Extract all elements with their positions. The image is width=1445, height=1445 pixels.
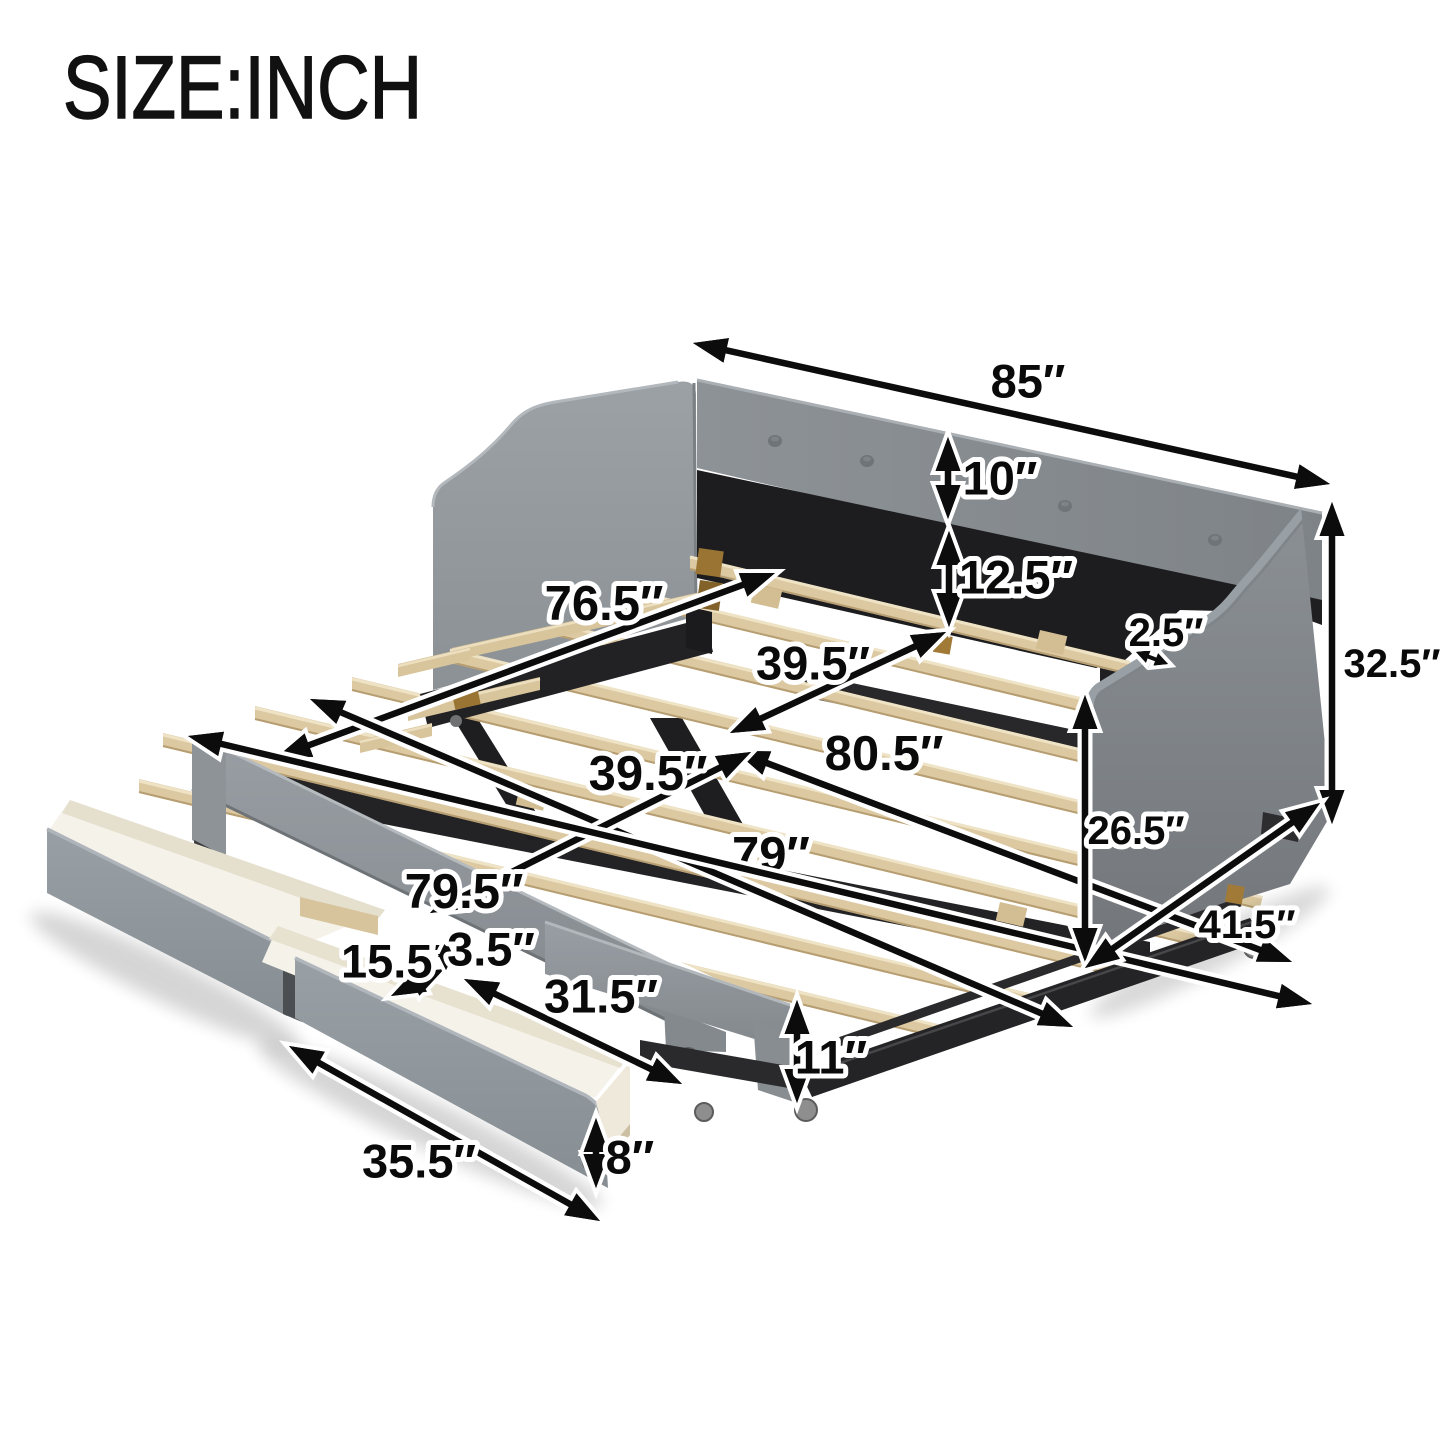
svg-text:12.5″: 12.5″ (959, 551, 1073, 604)
svg-text:35.5″: 35.5″ (362, 1135, 476, 1188)
svg-text:26.5″: 26.5″ (1087, 809, 1184, 853)
svg-text:76.5″: 76.5″ (545, 577, 664, 631)
svg-text:8″: 8″ (606, 1131, 655, 1184)
svg-text:79.5″: 79.5″ (405, 865, 524, 919)
svg-text:41.5″: 41.5″ (1198, 903, 1295, 947)
svg-text:2.5″: 2.5″ (1129, 611, 1204, 655)
svg-text:31.5″: 31.5″ (544, 970, 658, 1023)
svg-text:SIZE:INCH: SIZE:INCH (63, 37, 422, 137)
svg-text:85″: 85″ (991, 355, 1066, 408)
svg-text:3.5″: 3.5″ (447, 923, 535, 976)
svg-text:80.5″: 80.5″ (825, 727, 944, 781)
svg-text:10″: 10″ (963, 452, 1038, 505)
svg-text:11″: 11″ (795, 1031, 867, 1084)
svg-text:39.5″: 39.5″ (589, 747, 708, 801)
svg-text:32.5″: 32.5″ (1343, 642, 1440, 686)
svg-text:39.5″: 39.5″ (756, 637, 870, 690)
